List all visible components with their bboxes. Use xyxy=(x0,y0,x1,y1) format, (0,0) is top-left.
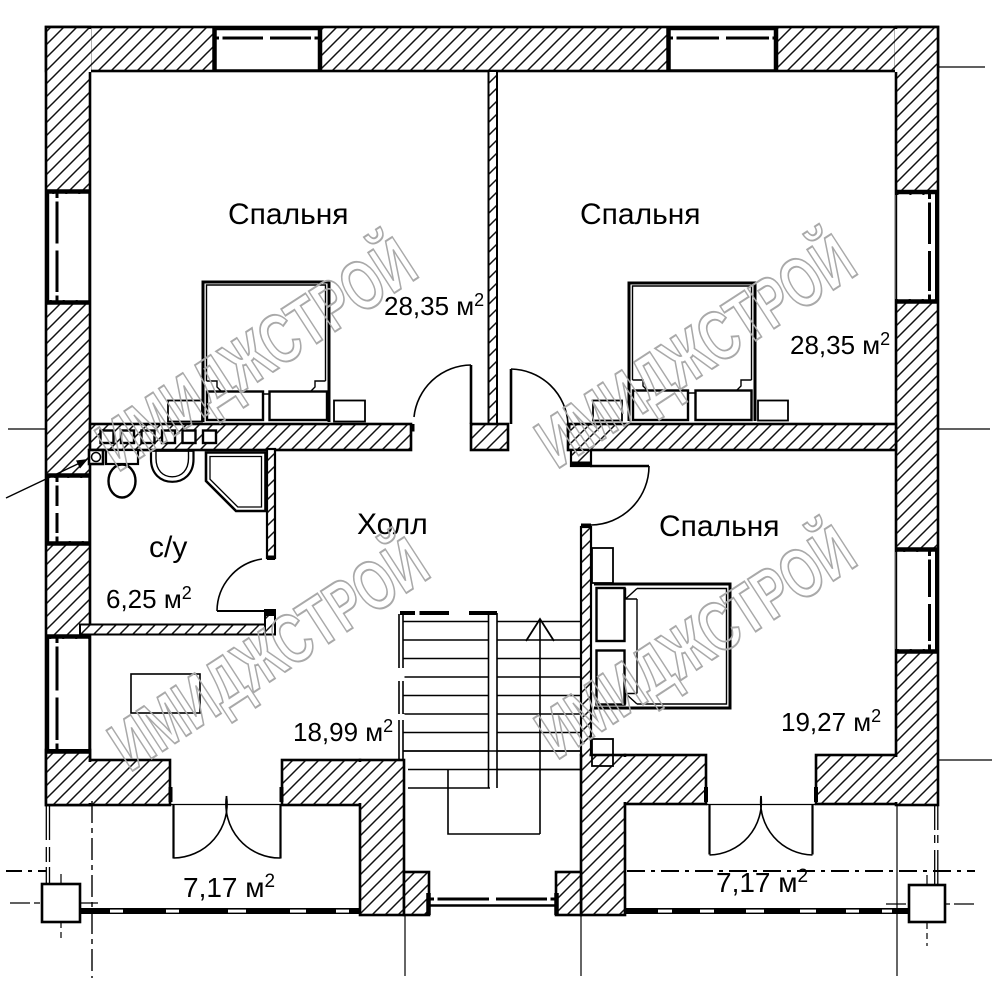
svg-text:Спальня: Спальня xyxy=(228,198,349,231)
svg-text:7,17 м2: 7,17 м2 xyxy=(183,871,275,903)
svg-text:с/у: с/у xyxy=(149,531,187,564)
svg-text:19,27 м2: 19,27 м2 xyxy=(781,706,881,737)
svg-text:Спальня: Спальня xyxy=(580,198,701,231)
svg-text:Спальня: Спальня xyxy=(659,510,780,543)
svg-text:7,17 м2: 7,17 м2 xyxy=(716,866,808,898)
svg-text:28,35 м2: 28,35 м2 xyxy=(790,329,890,360)
svg-text:18,99 м2: 18,99 м2 xyxy=(293,716,393,747)
svg-text:6,25 м2: 6,25 м2 xyxy=(106,583,192,614)
